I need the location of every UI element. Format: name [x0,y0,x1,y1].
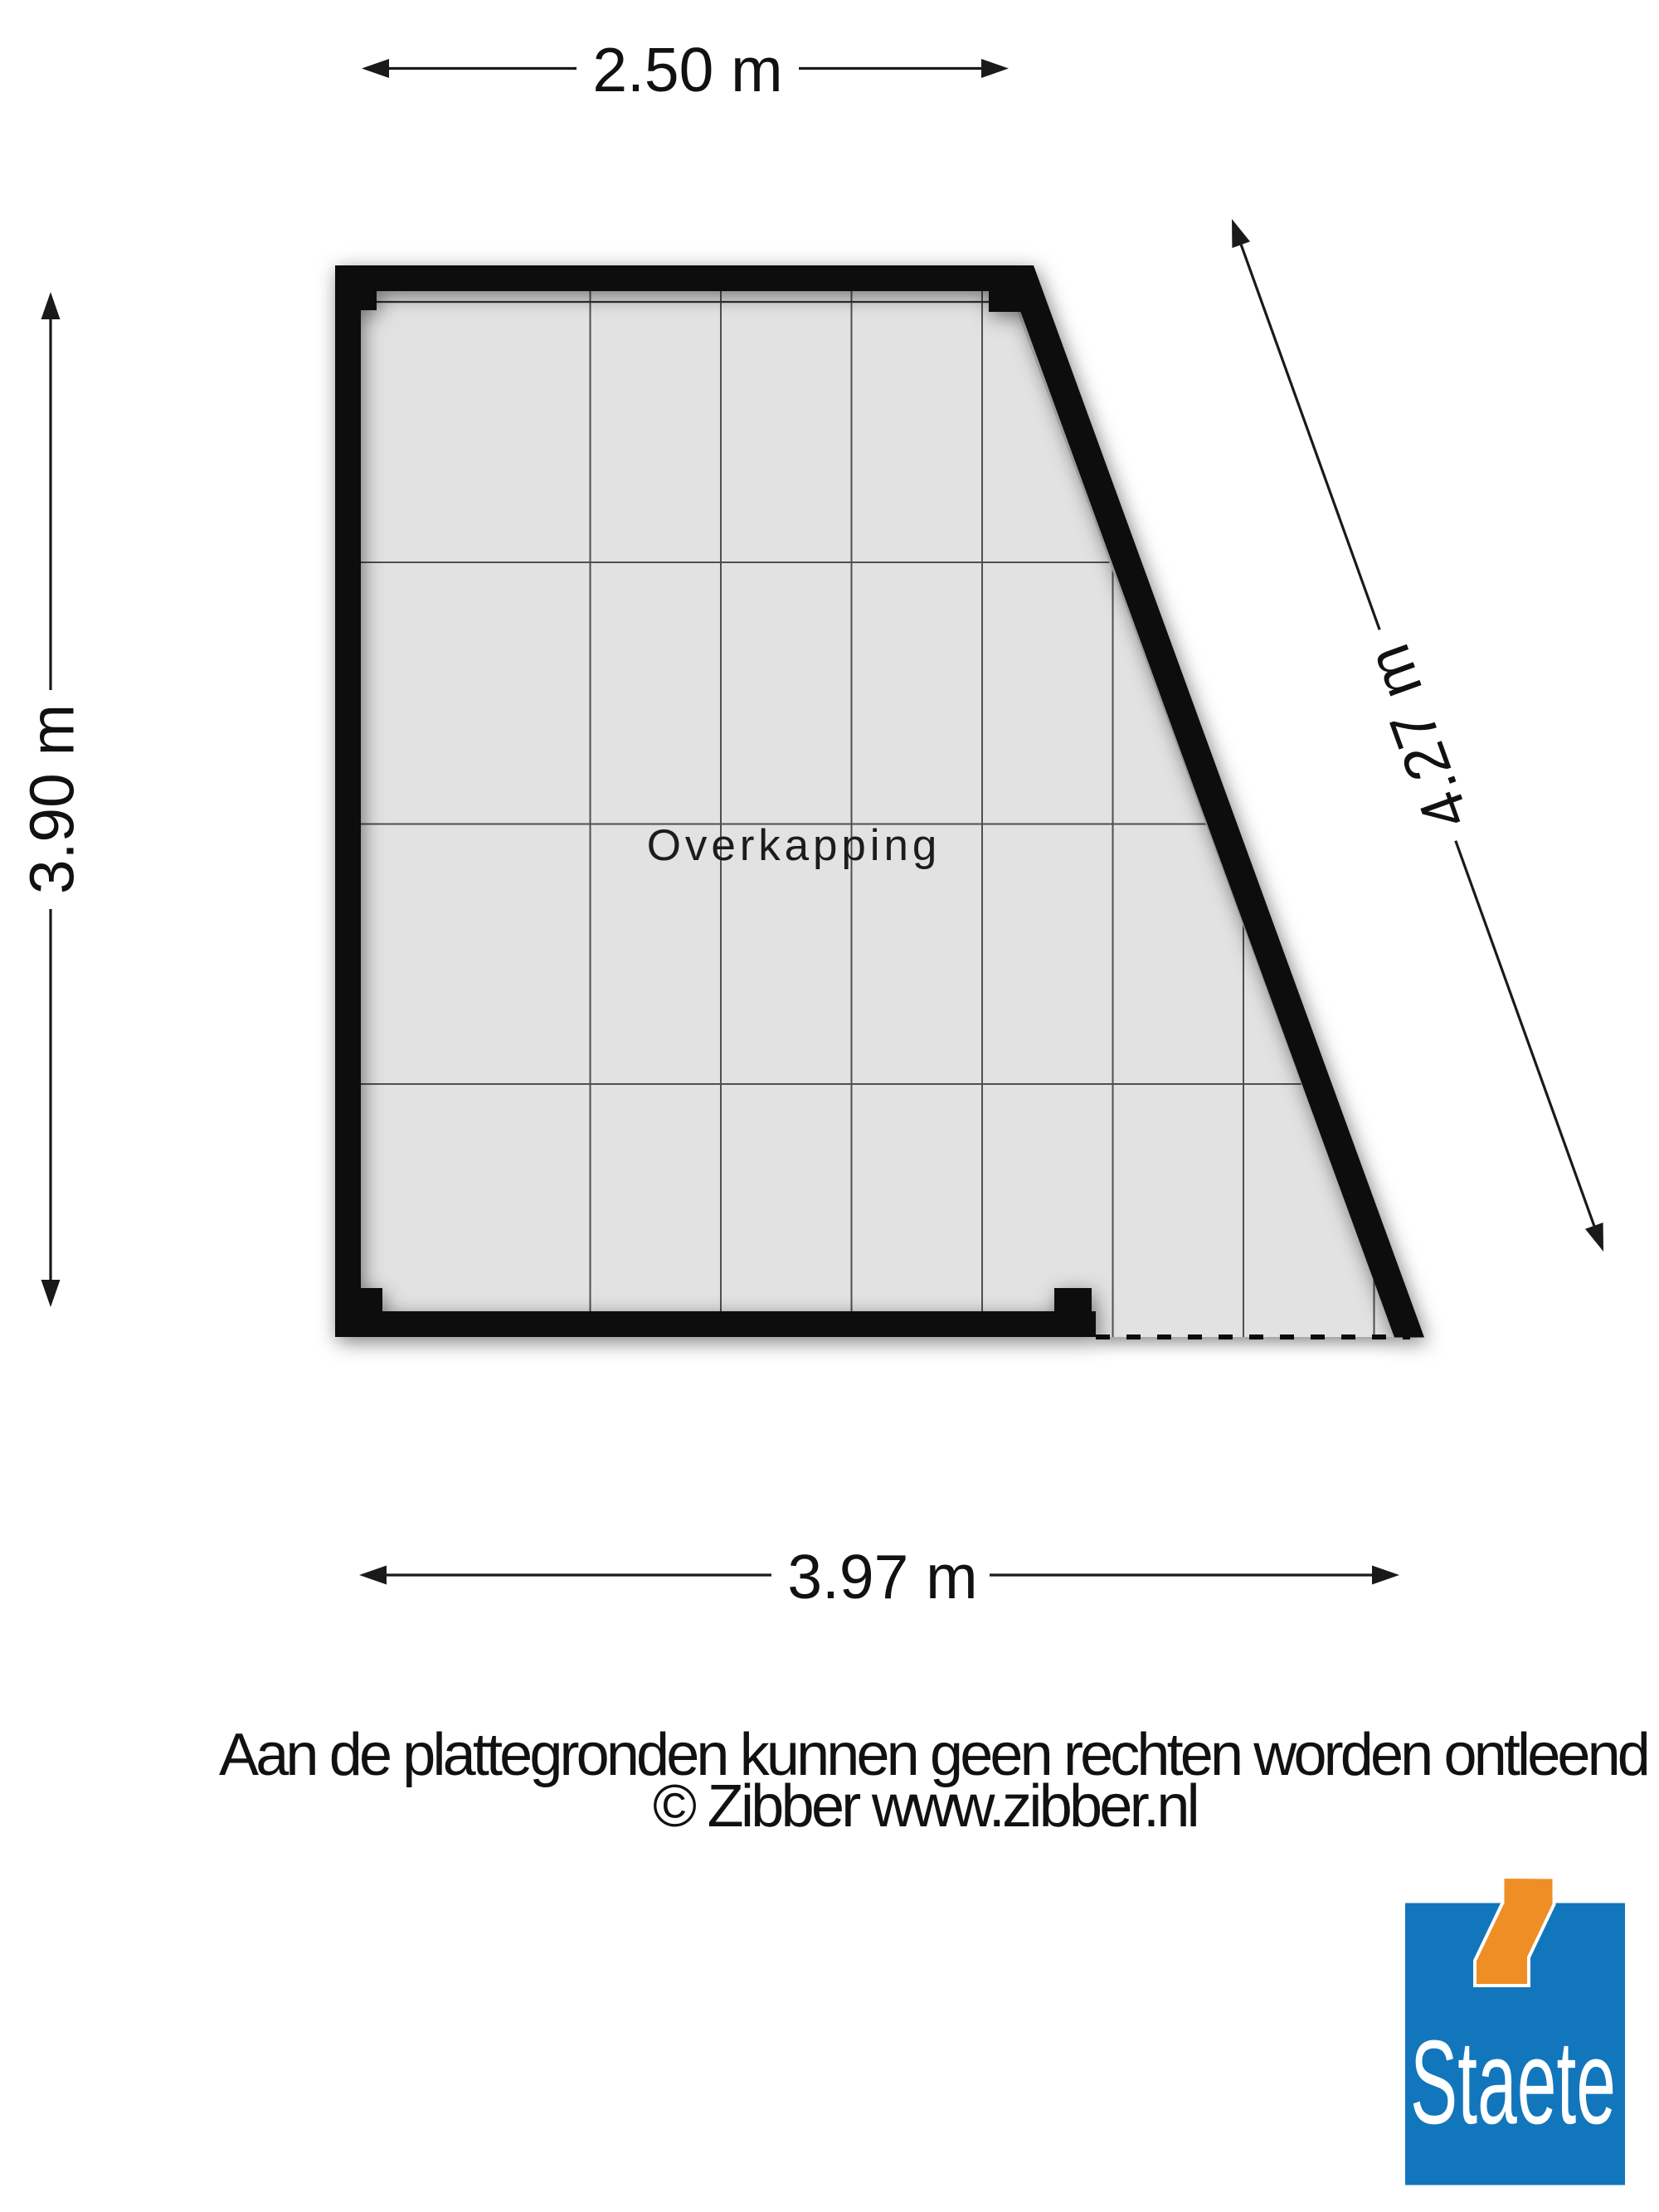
svg-text:4.27 m: 4.27 m [1352,636,1482,839]
svg-text:Staete: Staete [1410,2015,1616,2149]
svg-text:© Zibber www.zibber.nl: © Zibber www.zibber.nl [653,1773,1197,1840]
svg-text:2.50 m: 2.50 m [592,35,782,105]
svg-text:3.97 m: 3.97 m [787,1542,977,1612]
svg-text:3.90 m: 3.90 m [17,704,87,894]
svg-text:Overkapping: Overkapping [647,821,941,870]
